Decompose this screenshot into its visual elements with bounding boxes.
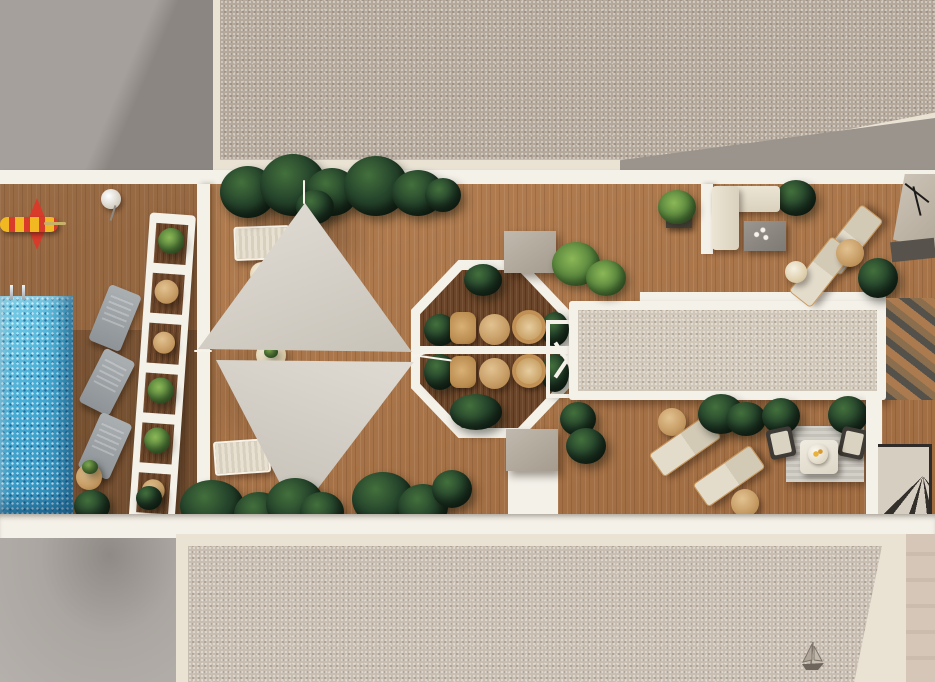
dining-table-2 <box>479 358 510 389</box>
skylight-gravel <box>578 310 877 391</box>
slat-stair-band <box>886 298 935 400</box>
dining-chair-4 <box>512 354 546 388</box>
rooftop-plan-render <box>0 0 935 682</box>
bush-bottom-7 <box>432 470 472 508</box>
l-sofa-vertical <box>712 186 739 250</box>
float-tail <box>44 222 66 225</box>
swimming-pool <box>0 296 73 518</box>
upper-left-gray-roof <box>0 0 213 180</box>
winder-staircase <box>878 444 932 516</box>
bush-poolside-2 <box>136 486 162 510</box>
left-divider-wall <box>197 184 210 524</box>
bush-top-7 <box>425 178 461 212</box>
sunbed-table-white <box>785 261 807 283</box>
loveseat-tray <box>808 444 828 464</box>
coffee-table <box>744 221 786 251</box>
octagon-bush-top <box>464 264 502 296</box>
sunbed-corner-bush <box>858 258 898 298</box>
deck-lamp <box>101 189 121 209</box>
pool-side-table-plant <box>82 460 98 474</box>
pool-float-toy <box>0 196 80 252</box>
sail-rope-top <box>303 180 305 204</box>
sailboat-icon <box>798 640 828 674</box>
lower-left-gray-roof <box>0 538 176 682</box>
lower-gravel-roof <box>188 546 882 682</box>
sail-rope-left <box>194 350 212 352</box>
octagon-bush-bottom <box>450 394 502 430</box>
pool-ladder-rail-right <box>22 285 25 300</box>
palm-planter-plant <box>658 190 696 224</box>
dining-chair-2 <box>512 310 546 344</box>
sofa-corner-bush <box>776 180 816 216</box>
dining-chair-1 <box>450 312 476 344</box>
sunbed-table-wood <box>836 239 864 267</box>
palm-center-2 <box>586 260 626 296</box>
br-bush-2 <box>726 402 766 436</box>
pool-ladder-rail-left <box>10 285 13 300</box>
chimney-block-bottom <box>506 429 558 471</box>
bush-mid-right-2 <box>566 428 606 464</box>
chimney-block-top <box>504 231 556 273</box>
dining-chair-3 <box>450 356 476 388</box>
lower-right-wall <box>906 534 935 682</box>
dining-table-1 <box>479 314 510 345</box>
br-table-wood-2 <box>731 489 759 517</box>
